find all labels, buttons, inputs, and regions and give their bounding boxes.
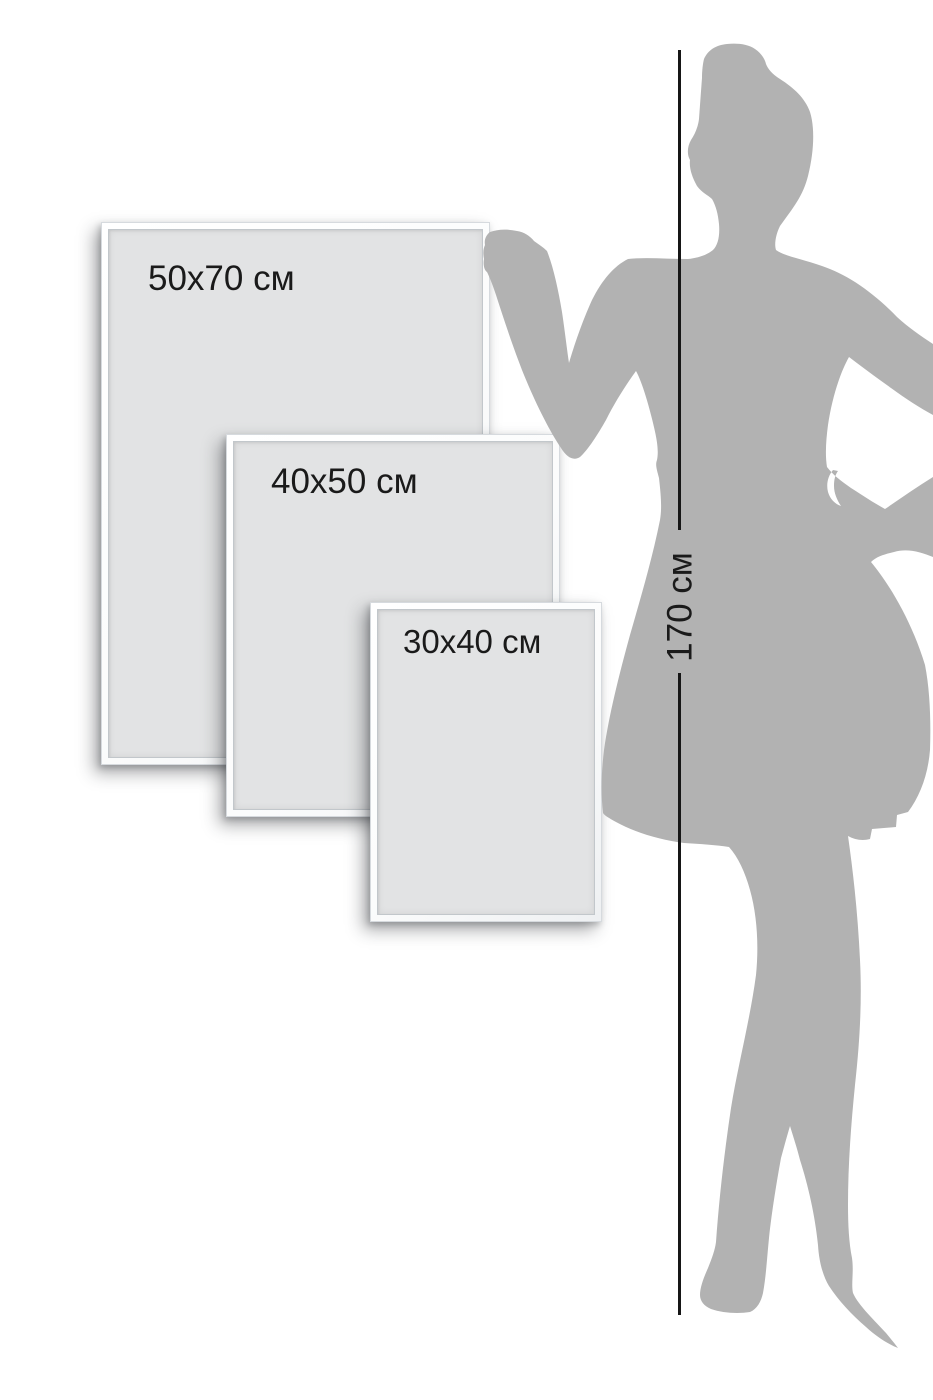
height-line-upper-segment	[678, 50, 681, 530]
height-line-lower-segment	[678, 673, 681, 1315]
size-comparison-diagram: 50x70 см 40x50 см 30x40 см 170 см	[0, 0, 933, 1400]
height-label: 170 см	[663, 552, 698, 662]
woman-silhouette	[0, 0, 933, 1400]
